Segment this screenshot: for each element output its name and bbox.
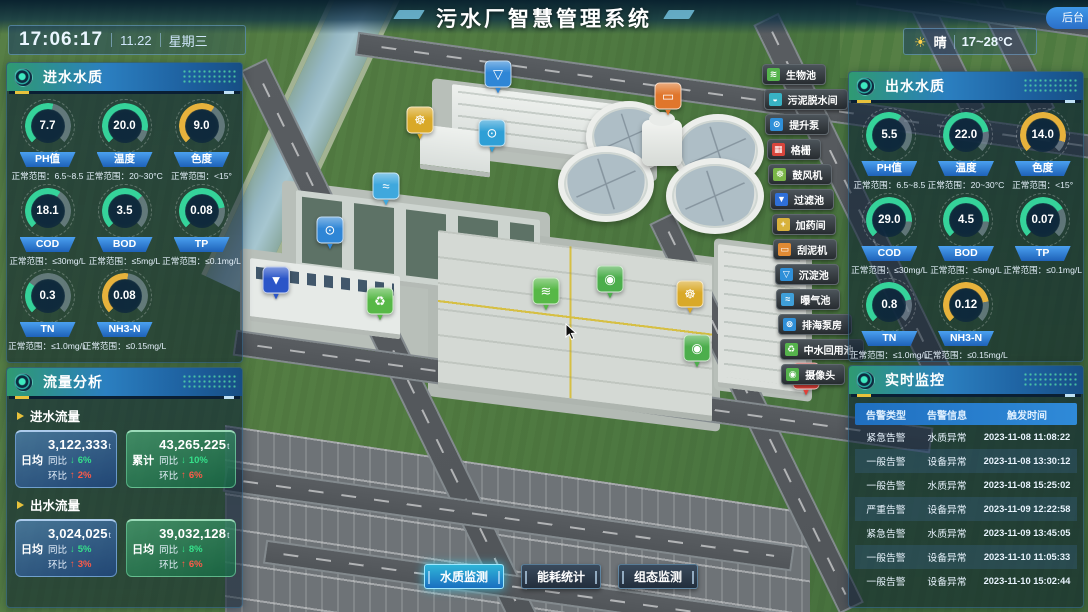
gauge-value: 22.0 [949,118,983,152]
legend-label: 中水回用池 [804,342,854,357]
gauge-normal-range: 正常范围：≤5mg/L [930,264,1002,276]
legend-label: 生物池 [786,67,816,82]
marker-arrow-icon: ▾ [543,304,549,313]
alarm-cell: 2023-11-09 13:45:05 [977,528,1077,538]
alarm-cell: 2023-11-08 15:25:02 [977,480,1077,490]
sun-icon: ☀ [914,35,927,49]
gauge-normal-range: 正常范围：<15° [171,170,232,182]
marker-arrow-icon: ▾ [327,243,333,252]
arrow-down-icon: ↓ [181,455,186,466]
gauge-ring: 18.1 [25,188,71,234]
gauge-value: 0.08 [185,194,219,228]
gauge-label: COD [20,237,76,252]
aeration-pool-icon: ≈ [781,293,794,306]
alarm-cell: 设备异常 [917,454,977,468]
gauge-value: 0.08 [108,279,142,313]
中水回用池-icon: ♻ [367,288,394,315]
gauge-ring: 0.12 [943,282,989,328]
曝气池-icon: ≈ [373,173,400,200]
panel-header: 实时监控 [849,366,1083,394]
marker-arrow-icon: ▾ [417,133,423,142]
panel-title: 流量分析 [43,372,103,392]
gauge-ring: 4.5 [943,197,989,243]
gauge-ring: 3.5 [102,188,148,234]
triangle-icon [17,501,24,509]
alarm-cell: 水质异常 [917,526,977,540]
gauge-label: TN [20,322,76,337]
gauge-label: NH3-N [97,322,153,337]
legend-item-提升泵[interactable]: ⊙提升泵 [765,114,829,135]
gauge-value: 4.5 [949,203,983,237]
gauge-normal-range: 正常范围：6.5~8.5 [853,179,925,191]
gauge-value: 3.5 [108,194,142,228]
legend-item-格栅[interactable]: ▦格栅 [767,139,821,160]
legend-label: 刮泥机 [797,242,827,257]
alarm-cell: 水质异常 [917,478,977,492]
gauge-value: 20.0 [108,109,142,143]
gauge-ring: 0.08 [179,188,225,234]
marker-arrow-icon: ▾ [607,292,613,301]
提升泵-icon: ⊙ [317,217,344,244]
gauge-label: 温度 [938,161,994,176]
gauge-COD: 18.1COD正常范围：≤30mg/L [10,188,86,267]
gauge-label: TP [174,237,230,252]
legend-item-排海泵房[interactable]: ⊚排海泵房 [778,314,852,335]
header-underline [9,396,240,399]
clock-date: 11.22 [120,33,152,48]
map-marker-摄像头[interactable]: ◉▾ [597,266,624,301]
flow-cards: 日均 3,122,333t 同比↓6% 环比↑2% 累计 43,265,225t… [7,430,242,488]
legend-label: 过滤池 [794,192,824,207]
col-trigger-time: 触发时间 [977,407,1077,422]
gauge-NH3-N: 0.12NH3-N正常范围：≤0.15mg/L [928,282,1004,361]
marker-arrow-icon: ▾ [687,307,693,316]
gauge-normal-range: 正常范围：≤0.15mg/L [924,349,1008,361]
gauge-normal-range: 正常范围：≤0.1mg/L [1003,264,1082,276]
gauge-normal-range: 正常范围：≤30mg/L [9,255,85,267]
marker-arrow-icon: ▾ [489,146,495,155]
clock-widget: 17:06:17 11.22 星期三 [8,25,246,55]
flow-group-label: 出水流量 [17,495,242,514]
alarm-row[interactable]: 一般告警水质异常2023-11-08 15:25:02 [855,473,1077,497]
flow-card-inlet-daily: 日均 3,122,333t 同比↓6% 环比↑2% [15,430,117,488]
legend-item-生物池[interactable]: ≋生物池 [762,64,826,85]
legend-item-曝气池[interactable]: ≈曝气池 [776,289,840,310]
gauge-ring: 9.0 [179,103,225,149]
flow-card-outlet-total: 日均 39,032,128t 同比↓8% 环比↑6% [126,519,236,577]
gauge-normal-range: 正常范围：≤1.0mg/L [8,340,87,352]
panel-header-icon [856,371,875,390]
legend-label: 沉淀池 [799,267,829,282]
legend-item-加药间[interactable]: +加药间 [772,214,836,235]
gauge-label: TP [1015,246,1071,261]
摄像头-icon: ◉ [684,335,711,362]
alarm-cell: 2023-11-09 12:22:58 [977,504,1077,514]
gauge-NH3-N: 0.08NH3-N正常范围：≤0.15mg/L [87,273,163,352]
arrow-up-icon: ↑ [70,559,75,570]
panel-title: 出水水质 [885,76,945,96]
sea-pump-house-icon: ⊚ [783,318,796,331]
panel-header-icon [856,77,875,96]
map-marker-提升泵[interactable]: ⊙▾ [317,217,344,252]
weather-condition: 晴 [934,32,947,51]
header-deco-left [393,10,425,19]
legend-label: 提升泵 [789,117,819,132]
legend-item-沉淀池[interactable]: ▽沉淀池 [775,264,839,285]
gauge-ring: 5.5 [866,112,912,158]
gauge-normal-range: 正常范围：≤1.0mg/L [850,349,929,361]
map-marker-提升泵[interactable]: ⊙▾ [479,120,506,155]
gauge-label: BOD [97,237,153,252]
arrow-up-icon: ↑ [70,470,75,481]
gauge-TN: 0.3TN正常范围：≤1.0mg/L [10,273,86,352]
arrow-down-icon: ↓ [70,455,75,466]
yoy-row: 同比↓6% [48,453,92,467]
tab-scada-monitor[interactable]: 组态监测 [618,564,698,589]
flow-value: 39,032,128t [159,526,230,541]
legend-label: 格栅 [791,142,811,157]
gauge-label: COD [861,246,917,261]
mom-row: 环比↑2% [48,468,92,482]
alarm-row[interactable]: 一般告警设备异常2023-11-10 11:05:33 [855,545,1077,569]
gauge-value: 7.7 [31,109,65,143]
map-marker-曝气池[interactable]: ≈▾ [373,173,400,208]
panel-header: 流量分析 [7,368,242,396]
gauge-label: PH值 [861,161,917,176]
沉淀池-icon: ▽ [485,61,512,88]
gauge-COD: 29.0COD正常范围：≤30mg/L [851,197,927,276]
alarm-rows: 紧急告警水质异常2023-11-08 11:08:22一般告警设备异常2023-… [855,425,1077,593]
flow-group-title: 出水流量 [30,495,80,514]
alarm-cell: 严重告警 [855,502,917,516]
bottom-nav: 水质监测 能耗统计 组态监测 [424,564,698,589]
摄像头-icon: ◉ [597,266,624,293]
flow-value: 43,265,225t [159,437,230,452]
legend-item-污泥脱水间[interactable]: ◒污泥脱水间 [764,89,848,110]
marker-arrow-icon: ▾ [273,293,279,302]
clarifier-tank [666,158,764,234]
flow-cards: 日均 3,024,025t 同比↓5% 环比↑3% 日均 39,032,128t… [7,519,242,577]
gauge-ring: 0.08 [102,273,148,319]
legend-item-刮泥机[interactable]: ▭刮泥机 [773,239,837,260]
blower-fan-icon: ☸ [773,168,786,181]
alarm-row[interactable]: 一般告警设备异常2023-11-08 13:30:12 [855,449,1077,473]
triangle-icon [17,412,24,420]
map-marker-摄像头[interactable]: ◉▾ [684,335,711,370]
lift-pump-icon: ⊙ [770,118,783,131]
alarm-cell: 紧急告警 [855,430,917,444]
arrow-down-icon: ↓ [70,544,75,555]
header-deco-right [663,10,695,19]
gauge-value: 0.3 [31,279,65,313]
gauge-label: 色度 [1015,161,1071,176]
gauge-ring: 14.0 [1020,112,1066,158]
marker-arrow-icon: ▾ [495,87,501,96]
过滤池-icon: ▼ [263,267,290,294]
gauge-TP: 0.08TP正常范围：≤0.1mg/L [164,188,240,267]
gauge-value: 0.12 [949,288,983,322]
mom-row: 环比↑6% [159,557,203,571]
alarm-row[interactable]: 紧急告警水质异常2023-11-09 13:45:05 [855,521,1077,545]
map-marker-鼓风机[interactable]: ☸▾ [407,107,434,142]
gauge-normal-range: 正常范围：20~30°C [86,170,163,182]
刮泥机-icon: ▭ [655,83,682,110]
legend-item-过滤池[interactable]: ▼过滤池 [770,189,834,210]
gauge-TP: 0.07TP正常范围：≤0.1mg/L [1005,197,1081,276]
alarm-cell: 水质异常 [917,430,977,444]
marker-arrow-icon: ▾ [377,314,383,323]
legend-label: 污泥脱水间 [788,92,838,107]
alarm-row[interactable]: 一般告警设备异常2023-11-10 15:02:44 [855,569,1077,593]
gauge-label: PH值 [20,152,76,167]
panel-header: 出水水质 [849,72,1083,100]
col-alarm-info: 告警信息 [917,407,977,422]
flow-value: 3,024,025t [48,526,111,541]
gauge-normal-range: 正常范围：≤30mg/L [851,264,927,276]
map-marker-鼓风机[interactable]: ☸▾ [677,281,704,316]
panel-header: 进水水质 [7,63,242,91]
marker-arrow-icon: ▾ [665,109,671,118]
yoy-row: 同比↓5% [48,542,92,556]
dosing-room-icon: + [777,218,790,231]
grid-screen-icon: ▦ [772,143,785,156]
gauge-ring: 29.0 [866,197,912,243]
admin-button[interactable]: 后台 [1046,7,1088,29]
alarm-row[interactable]: 紧急告警水质异常2023-11-08 11:08:22 [855,425,1077,449]
legend-label: 摄像头 [805,367,835,382]
sediment-pool-icon: ▽ [780,268,793,281]
clock-time: 17:06:17 [19,29,103,51]
gauge-label: 色度 [174,152,230,167]
col-alarm-type: 告警类型 [855,407,917,422]
gauge-PH值: 7.7PH值正常范围：6.5~8.5 [10,103,86,182]
gauge-ring: 0.8 [866,282,912,328]
alarm-row[interactable]: 严重告警设备异常2023-11-09 12:22:58 [855,497,1077,521]
生物池-icon: ≋ [533,278,560,305]
clock-weekday: 星期三 [169,31,208,50]
panel-title: 进水水质 [43,67,103,87]
yoy-row: 同比↓10% [159,453,208,467]
header-underline [9,91,240,94]
outlet-gauges-grid: 5.5PH值正常范围：6.5~8.522.0温度正常范围：20~30°C14.0… [849,103,1083,361]
panel-inlet-quality: 进水水质 7.7PH值正常范围：6.5~8.520.0温度正常范围：20~30°… [6,62,243,363]
gauge-normal-range: 正常范围：≤5mg/L [89,255,161,267]
scraper-icon: ▭ [778,243,791,256]
panel-outlet-quality: 出水水质 5.5PH值正常范围：6.5~8.522.0温度正常范围：20~30°… [848,71,1084,362]
gauge-BOD: 3.5BOD正常范围：≤5mg/L [87,188,163,267]
gauge-value: 0.07 [1026,203,1060,237]
alarm-cell: 设备异常 [917,574,977,588]
gauge-normal-range: 正常范围：≤0.1mg/L [162,255,241,267]
arrow-up-icon: ↑ [181,470,186,481]
camera-icon: ◉ [786,368,799,381]
鼓风机-icon: ☸ [677,281,704,308]
gauge-ring: 22.0 [943,112,989,158]
sludge-dewater-icon: ◒ [769,93,782,106]
gauge-ring: 0.07 [1020,197,1066,243]
gauge-normal-range: 正常范围：<15° [1012,179,1073,191]
weather-widget: ☀ 晴 17~28°C [903,28,1037,55]
mom-row: 环比↑6% [159,468,203,482]
marker-arrow-icon: ▾ [694,361,700,370]
legend-label: 加药间 [796,217,826,232]
flow-card-tag: 日均 [21,452,43,468]
header-underline [851,100,1081,103]
gauge-label: NH3-N [938,331,994,346]
panel-flow-analysis: 流量分析 进水流量 日均 3,122,333t 同比↓6% 环比↑2% 累计 4… [6,367,243,608]
clarifier-tank [558,146,654,222]
alarm-cell: 2023-11-08 13:30:12 [977,456,1077,466]
alarm-cell: 2023-11-08 11:08:22 [977,432,1077,442]
gauge-normal-range: 正常范围：≤0.15mg/L [83,340,167,352]
gauge-value: 9.0 [185,109,219,143]
legend-label: 鼓风机 [792,167,822,182]
gauge-value: 14.0 [1026,118,1060,152]
yoy-row: 同比↓8% [159,542,203,556]
marker-arrow-icon: ▾ [383,199,389,208]
header-underline [851,394,1081,397]
alarm-cell: 设备异常 [917,502,977,516]
gauge-温度: 20.0温度正常范围：20~30°C [87,103,163,182]
flow-group-label: 进水流量 [17,406,242,425]
gauge-ring: 20.0 [102,103,148,149]
alarm-cell: 一般告警 [855,454,917,468]
map-marker-中水回用池[interactable]: ♻▾ [367,288,394,323]
arrow-down-icon: ↓ [181,544,186,555]
dashboard-root: 污水厂智慧管理系统 17:06:17 11.22 星期三 ☀ 晴 17~28°C… [0,0,1088,612]
inlet-gauges-grid: 7.7PH值正常范围：6.5~8.520.0温度正常范围：20~30°C9.0色… [7,94,242,352]
panel-title: 实时监控 [885,370,945,390]
mom-row: 环比↑3% [48,557,92,571]
tab-energy-stats[interactable]: 能耗统计 [521,564,601,589]
arrow-up-icon: ↑ [181,559,186,570]
gauge-label: 温度 [97,152,153,167]
map-marker-生物池[interactable]: ≋▾ [533,278,560,313]
alarm-table-header: 告警类型 告警信息 触发时间 [855,403,1077,425]
alarm-cell: 一般告警 [855,550,917,564]
central-tower [642,120,682,166]
gauge-normal-range: 正常范围：6.5~8.5 [12,170,84,182]
legend-item-摄像头[interactable]: ◉摄像头 [781,364,845,385]
flow-card-tag: 日均 [21,541,43,557]
marker-arrow-icon: ▾ [803,389,809,398]
divider [954,35,955,49]
flow-group-title: 进水流量 [30,406,80,425]
gauge-ring: 0.3 [25,273,71,319]
legend-label: 曝气池 [800,292,830,307]
alarm-cell: 设备异常 [917,550,977,564]
gauge-normal-range: 正常范围：20~30°C [928,179,1005,191]
alarm-table: 告警类型 告警信息 触发时间 紧急告警水质异常2023-11-08 11:08:… [855,403,1077,593]
panel-realtime-monitor: 实时监控 告警类型 告警信息 触发时间 紧急告警水质异常2023-11-08 1… [848,365,1084,608]
flow-card-tag: 累计 [132,452,154,468]
gauge-BOD: 4.5BOD正常范围：≤5mg/L [928,197,1004,276]
gauge-ring: 7.7 [25,103,71,149]
page-title: 污水厂智慧管理系统 [436,3,652,20]
gauge-色度: 9.0色度正常范围：<15° [164,103,240,182]
filter-pool-icon: ▼ [775,193,788,206]
panel-header-icon [14,373,33,392]
gauge-label: TN [861,331,917,346]
gauge-TN: 0.8TN正常范围：≤1.0mg/L [851,282,927,361]
flow-card-inlet-total: 累计 43,265,225t 同比↓10% 环比↑6% [126,430,236,488]
gauge-温度: 22.0温度正常范围：20~30°C [928,112,1004,191]
gauge-PH值: 5.5PH值正常范围：6.5~8.5 [851,112,927,191]
bio-pool-icon: ≋ [767,68,780,81]
alarm-cell: 一般告警 [855,574,917,588]
divider [111,33,112,47]
map-marker-沉淀池[interactable]: ▽▾ [485,61,512,96]
water-reuse-icon: ♻ [785,343,798,356]
panel-header-icon [14,68,33,87]
map-marker-过滤池[interactable]: ▼▾ [263,267,290,302]
flow-card-outlet-daily: 日均 3,024,025t 同比↓5% 环比↑3% [15,519,117,577]
gauge-label: BOD [938,246,994,261]
tab-water-quality-monitor[interactable]: 水质监测 [424,564,504,589]
提升泵-icon: ⊙ [479,120,506,147]
weather-temp-range: 17~28°C [962,34,1013,49]
flow-card-tag: 日均 [132,541,154,557]
alarm-cell: 一般告警 [855,478,917,492]
central-basin-building [438,230,712,422]
map-marker-刮泥机[interactable]: ▭▾ [655,83,682,118]
legend-label: 排海泵房 [802,317,842,332]
gauge-色度: 14.0色度正常范围：<15° [1005,112,1081,191]
alarm-cell: 2023-11-10 15:02:44 [977,576,1077,586]
legend-item-鼓风机[interactable]: ☸鼓风机 [768,164,832,185]
gauge-value: 18.1 [31,194,65,228]
alarm-cell: 紧急告警 [855,526,917,540]
鼓风机-icon: ☸ [407,107,434,134]
flow-value: 3,122,333t [48,437,111,452]
alarm-cell: 2023-11-10 11:05:33 [977,552,1077,562]
divider [160,33,161,47]
